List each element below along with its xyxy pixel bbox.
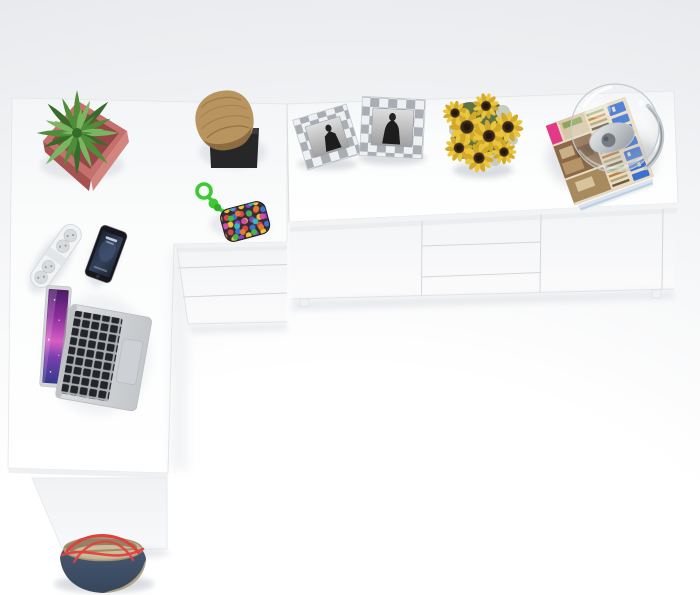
globe-reflection: [585, 102, 611, 118]
laptop-body: [55, 304, 152, 412]
sideboard-foot-left: [300, 299, 309, 306]
sideboard-seam-1: [422, 221, 423, 296]
handbag: [54, 535, 154, 593]
rope-knot-2: [214, 204, 222, 212]
pedestal-fronts: [177, 246, 287, 324]
globe-sparkle: [638, 100, 644, 106]
glass-globe: [571, 84, 659, 172]
pedestal-floor-shadow: [188, 323, 287, 334]
product-image: Top-down product photo of a white L-shap…: [0, 0, 700, 595]
scene-illustration: [0, 0, 700, 595]
photo-frame-right: [358, 96, 426, 165]
desk-pedestal: [177, 246, 287, 334]
sideboard-foot-right: [652, 290, 661, 298]
